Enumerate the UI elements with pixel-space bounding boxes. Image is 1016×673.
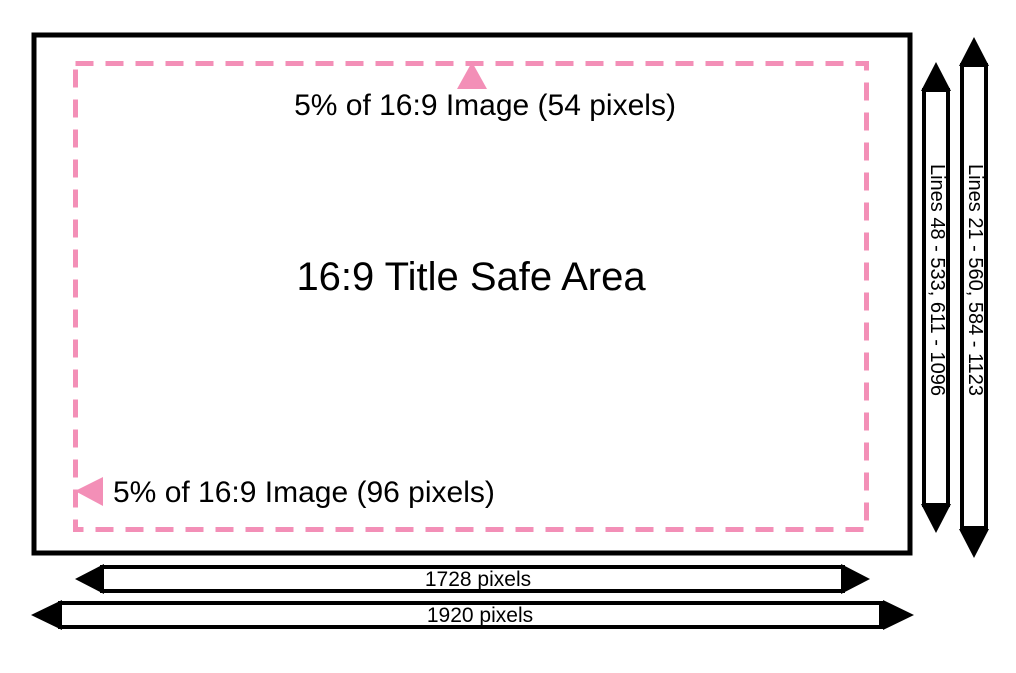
safe-width-label: 1728 pixels [425,568,531,591]
arrowhead-up-icon [921,62,951,91]
title-safe-label: 16:9 Title Safe Area [296,255,646,299]
arrowhead-left-icon [31,600,62,630]
safe-lines-dimension-bar: Lines 48 - 533, 611 - 1096 [921,62,951,533]
left-margin-annotation: 5% of 16:9 Image (96 pixels) [113,476,495,509]
top-margin-annotation: 5% of 16:9 Image (54 pixels) [294,89,676,122]
arrowhead-right-icon [841,564,870,594]
safe-width-dimension-bar: 1728 pixels [75,564,870,594]
diagram-svg: 16:9 Title Safe Area 5% of 16:9 Image (5… [0,0,1016,673]
arrowhead-left-icon [75,564,104,594]
arrowhead-right-icon [883,600,914,630]
full-width-label: 1920 pixels [427,604,533,627]
full-lines-label: Lines 21 - 560, 584 - 1123 [964,164,986,396]
arrowhead-down-icon [959,529,989,558]
arrowhead-up-icon [959,37,989,66]
title-safe-diagram: 16:9 Title Safe Area 5% of 16:9 Image (5… [0,0,1016,673]
full-lines-dimension-bar: Lines 21 - 560, 584 - 1123 [959,37,989,558]
full-width-dimension-bar: 1920 pixels [31,600,914,630]
safe-lines-label: Lines 48 - 533, 611 - 1096 [926,164,948,396]
arrowhead-down-icon [921,504,951,533]
